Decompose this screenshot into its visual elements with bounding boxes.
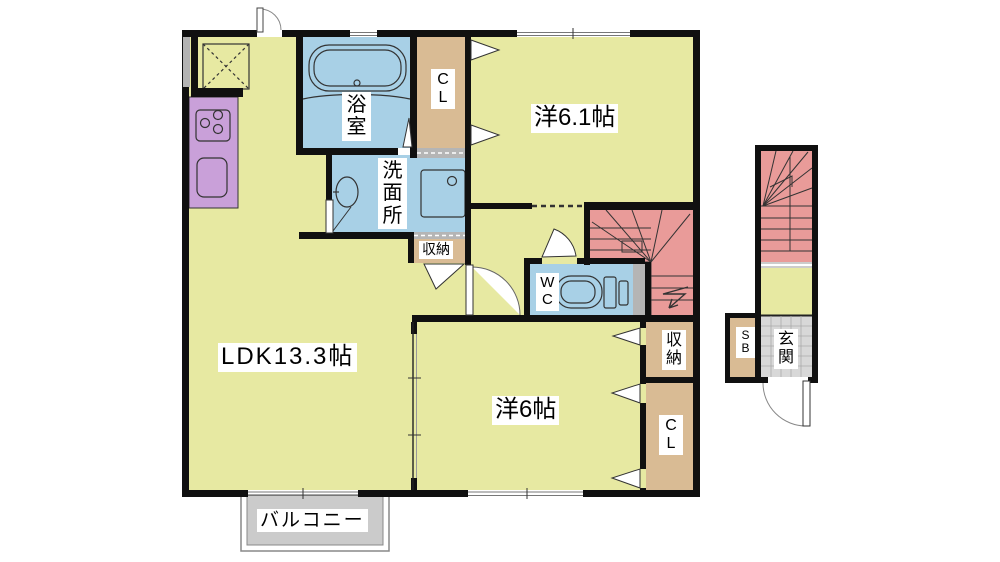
storage-hall-label: 収納 [419,241,453,259]
kitchen-service-door [257,8,281,32]
storage-stairs-label: 収納 [662,330,686,370]
closet-top-label: CL [431,69,455,109]
ldk-label: LDK13.3帖 [218,343,357,372]
floor-plan: 浴室 洗面所 CL 洋6.1帖 収納 WC 収納 LDK13.3帖 洋6帖 CL… [0,0,1000,562]
washroom-label: 洗面所 [378,158,407,229]
bath-label: 浴室 [342,92,371,141]
entrance-label: 玄関 [774,329,798,369]
shoebox-label: SB [736,327,755,358]
bedroom1-label: 洋6.1帖 [531,104,618,133]
fridge-space [203,44,249,89]
bedroom2-label: 洋6帖 [492,396,559,425]
bath-door-gap [398,148,410,155]
entrance-door [763,381,810,426]
closet-bottom-label: CL [659,415,683,455]
balcony-label: バルコニー [257,509,368,532]
floor-plan-drawing [0,0,1000,562]
left-wall-window [183,37,190,87]
wc-side-strip [633,264,645,315]
wc-label: WC [536,273,559,311]
